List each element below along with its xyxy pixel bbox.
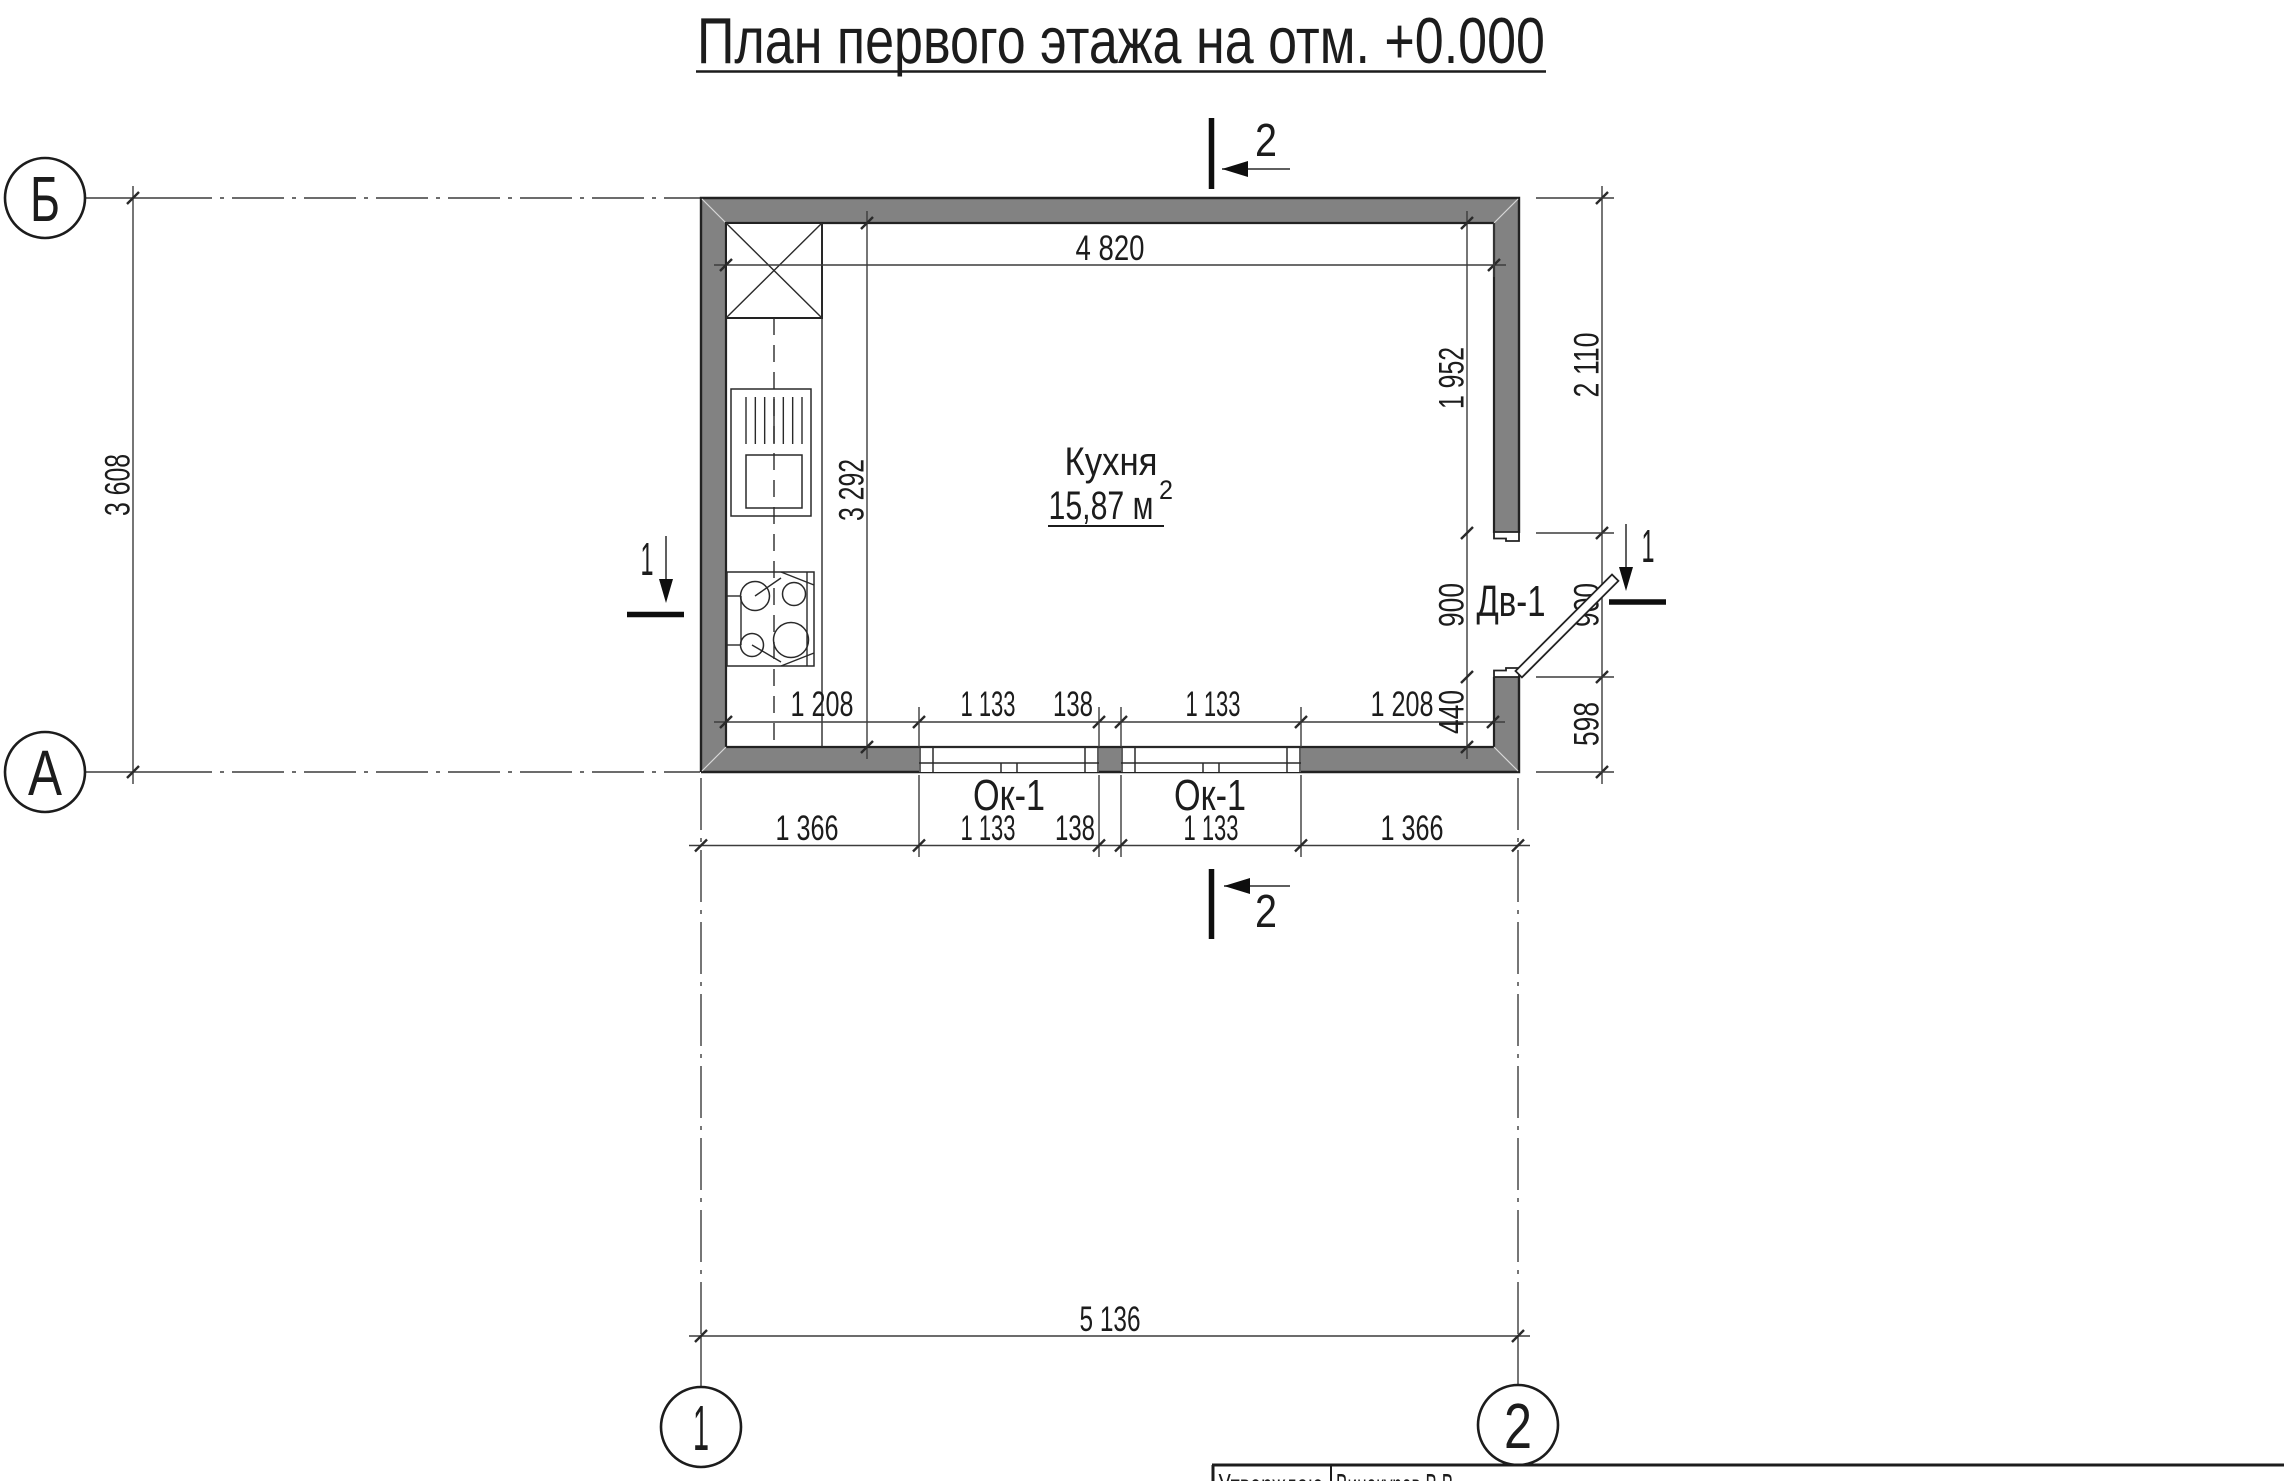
svg-text:1 366: 1 366 bbox=[1381, 809, 1444, 848]
svg-text:Б: Б bbox=[30, 163, 60, 235]
svg-text:1: 1 bbox=[693, 1392, 709, 1464]
svg-text:2: 2 bbox=[1159, 475, 1173, 505]
svg-text:5 136: 5 136 bbox=[1080, 1300, 1141, 1339]
svg-text:План первого этажа на отм. +0.: План первого этажа на отм. +0.000 bbox=[697, 4, 1545, 77]
svg-text:1 133: 1 133 bbox=[961, 809, 1016, 848]
svg-text:2: 2 bbox=[1255, 114, 1277, 166]
svg-text:1 133: 1 133 bbox=[961, 685, 1016, 724]
svg-text:598: 598 bbox=[1568, 702, 1607, 746]
svg-text:900: 900 bbox=[1433, 583, 1472, 627]
svg-text:4 820: 4 820 bbox=[1076, 229, 1145, 268]
svg-text:1: 1 bbox=[1642, 520, 1655, 572]
svg-text:3 292: 3 292 bbox=[833, 459, 872, 521]
svg-text:2 110: 2 110 bbox=[1568, 333, 1607, 398]
svg-text:1 133: 1 133 bbox=[1186, 685, 1241, 724]
svg-text:138: 138 bbox=[1055, 809, 1095, 848]
svg-text:2: 2 bbox=[1504, 1390, 1532, 1462]
svg-text:2: 2 bbox=[1255, 885, 1277, 937]
svg-text:3 608: 3 608 bbox=[99, 454, 138, 516]
svg-text:Дв-1: Дв-1 bbox=[1477, 577, 1546, 626]
svg-text:1 208: 1 208 bbox=[1371, 685, 1434, 724]
svg-text:А: А bbox=[28, 737, 62, 809]
svg-text:Винокуров В.В.: Винокуров В.В. bbox=[1336, 1467, 1458, 1481]
svg-text:Утверждаю: Утверждаю bbox=[1218, 1467, 1323, 1481]
svg-text:1 366: 1 366 bbox=[776, 809, 839, 848]
svg-text:15,87 м: 15,87 м bbox=[1049, 484, 1154, 528]
svg-text:1 208: 1 208 bbox=[791, 685, 854, 724]
svg-text:440: 440 bbox=[1433, 690, 1472, 734]
svg-text:138: 138 bbox=[1053, 685, 1093, 724]
svg-text:1 133: 1 133 bbox=[1184, 809, 1239, 848]
svg-text:Кухня: Кухня bbox=[1065, 440, 1158, 484]
svg-text:1: 1 bbox=[641, 533, 654, 585]
svg-text:1 952: 1 952 bbox=[1433, 347, 1472, 409]
